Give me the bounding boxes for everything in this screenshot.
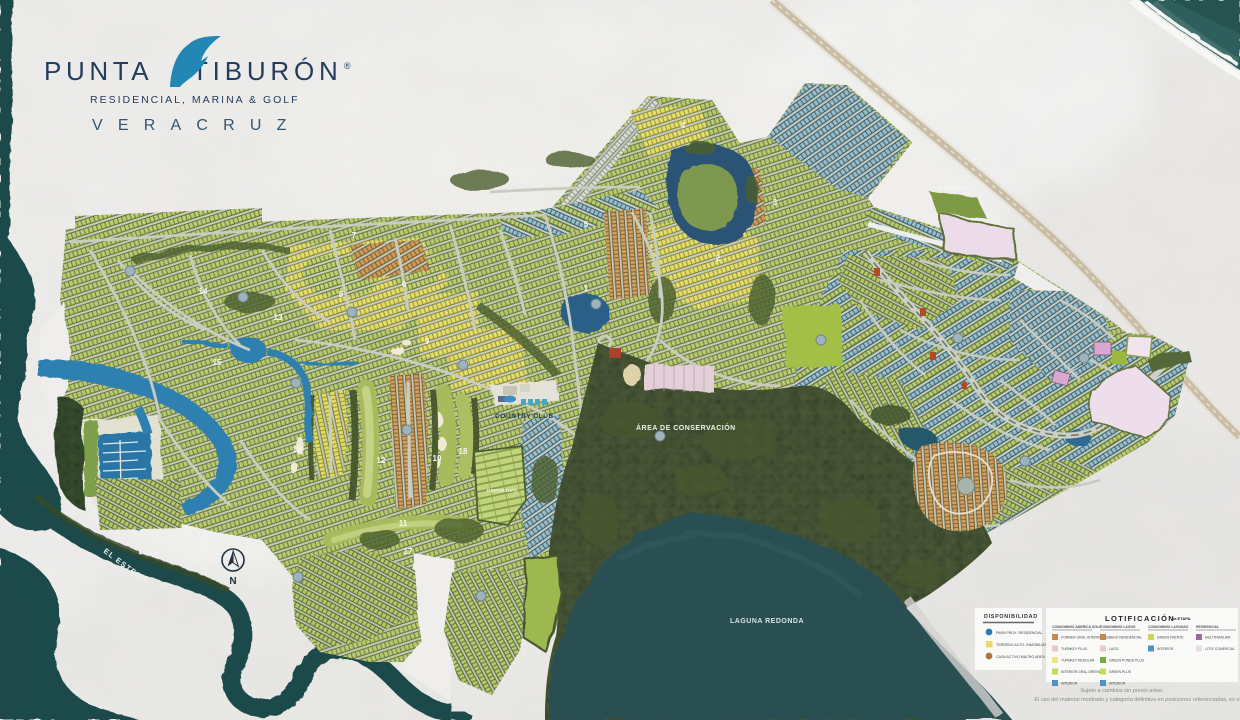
svg-text:El uso del material mostrado y: El uso del material mostrado y categoría… [1034, 697, 1240, 703]
svg-text:INTERIOR: INTERIOR [1109, 682, 1126, 686]
svg-text:DEPORTIVO: DEPORTIVO [487, 488, 517, 493]
svg-text:MULTIFAMILIAR: MULTIFAMILIAR [1205, 636, 1231, 640]
svg-text:CONDOMINIO LAGUNAS: CONDOMINIO LAGUNAS [1148, 625, 1189, 629]
svg-text:RESIDENCIAL, MARINA & GOLF: RESIDENCIAL, MARINA & GOLF [90, 94, 300, 106]
svg-text:8: 8 [339, 290, 344, 299]
svg-text:7: 7 [352, 231, 357, 240]
svg-text:6: 6 [402, 280, 407, 289]
svg-text:CONDOMINIO LAGOS: CONDOMINIO LAGOS [1100, 625, 1136, 629]
svg-text:Sujeto a cambios sin previo av: Sujeto a cambios sin previo aviso. [1080, 688, 1164, 694]
svg-text:16: 16 [293, 445, 302, 454]
svg-text:11: 11 [399, 519, 408, 528]
svg-text:TERRENO ACTO. INMOBILIARIO: TERRENO ACTO. INMOBILIARIO [996, 643, 1051, 647]
svg-text:ÁREA DE CONSERVACIÓN: ÁREA DE CONSERVACIÓN [636, 423, 736, 432]
svg-text:5: 5 [584, 220, 589, 229]
svg-text:COUNTRY CLUB: COUNTRY CLUB [495, 413, 554, 420]
svg-text:INTERIOR: INTERIOR [1157, 647, 1174, 651]
svg-text:17: 17 [404, 547, 413, 556]
svg-text:GREEN PLUS: GREEN PLUS [1109, 670, 1132, 674]
svg-text:LOTIFICACIÓN: LOTIFICACIÓN [1105, 614, 1175, 623]
svg-text:1a ETAPA: 1a ETAPA [1172, 616, 1191, 621]
svg-text:13: 13 [274, 313, 283, 322]
svg-text:GREEN PONDS PLUS: GREEN PONDS PLUS [1109, 659, 1145, 663]
svg-text:INTERIOR GRAL GREEN: INTERIOR GRAL GREEN [1061, 670, 1101, 674]
svg-text:®: ® [344, 61, 351, 71]
svg-text:1: 1 [584, 284, 589, 293]
svg-text:VERACRUZ: VERACRUZ [92, 117, 302, 134]
svg-text:2: 2 [716, 254, 721, 263]
svg-text:14: 14 [199, 287, 208, 296]
svg-text:N: N [229, 576, 236, 587]
svg-text:LAGO: LAGO [1109, 647, 1119, 651]
svg-text:PUNTA: PUNTA [44, 56, 153, 86]
svg-text:TURNKEY PLUS: TURNKEY PLUS [1061, 647, 1088, 651]
svg-text:LAGUNA REDONDA: LAGUNA REDONDA [730, 618, 804, 625]
svg-text:GREEN FRENTE: GREEN FRENTE [1157, 636, 1184, 640]
svg-text:9: 9 [425, 337, 430, 346]
svg-text:MARINAS: MARINAS [938, 186, 970, 192]
svg-text:18: 18 [459, 447, 468, 456]
svg-text:10: 10 [433, 454, 442, 463]
svg-text:INTERIOR: INTERIOR [1061, 682, 1078, 686]
svg-text:LOTE COMERCIAL: LOTE COMERCIAL [1205, 647, 1235, 651]
svg-text:15: 15 [213, 358, 222, 367]
svg-text:TIBURÓN: TIBURÓN [192, 56, 343, 86]
svg-text:3: 3 [773, 198, 778, 207]
svg-text:4: 4 [681, 121, 686, 130]
svg-text:12: 12 [377, 456, 386, 465]
svg-text:RESIDENCIAL: RESIDENCIAL [1196, 625, 1219, 629]
svg-text:CASA ACTIVO MACRO AREA: CASA ACTIVO MACRO AREA [996, 655, 1045, 659]
svg-text:TURNKEY REGULAR: TURNKEY REGULAR [1061, 659, 1095, 663]
svg-text:LAGO RESIDENCIAL: LAGO RESIDENCIAL [1109, 636, 1142, 640]
svg-text:CONDOMINIO AMERICA GOLF: CONDOMINIO AMERICA GOLF [1052, 625, 1101, 629]
svg-text:DISPONIBILIDAD: DISPONIBILIDAD [984, 614, 1038, 620]
svg-text:PARA PROX. RESIDENCIAL: PARA PROX. RESIDENCIAL [996, 631, 1042, 635]
